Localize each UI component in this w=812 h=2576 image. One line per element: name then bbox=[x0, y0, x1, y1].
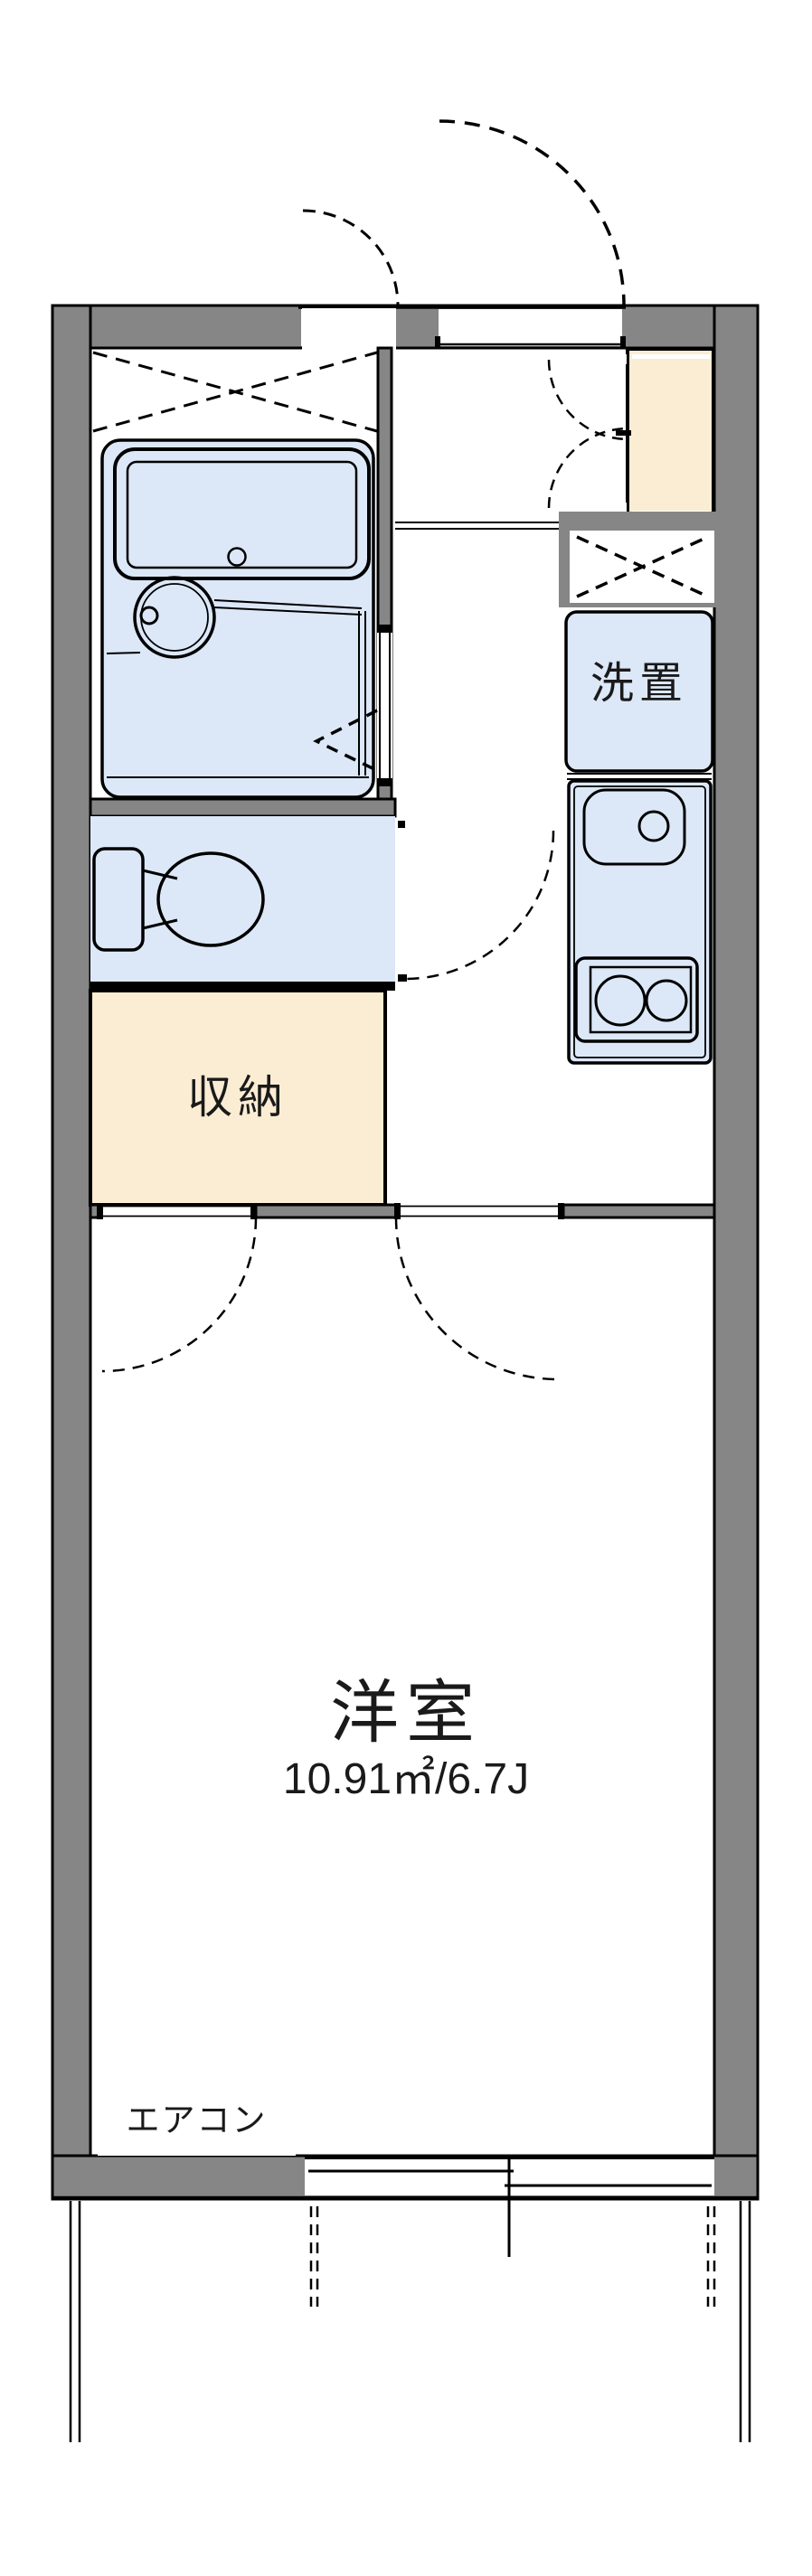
toilet-room bbox=[90, 799, 553, 991]
washer-space-label: 洗置 bbox=[566, 661, 713, 708]
bathroom bbox=[102, 440, 373, 797]
balcony-equipment-outline bbox=[81, 2216, 260, 2271]
pipe-space-box bbox=[559, 512, 716, 607]
balcony-partition-marks bbox=[311, 2206, 714, 2307]
floor-plan: 洗置 収納 洋室 10.91㎡/6.7J エアコン bbox=[0, 0, 812, 2576]
western-room-label: 洋室 bbox=[90, 1678, 722, 1750]
dead-space-cross bbox=[93, 353, 377, 431]
mid-partition-wall bbox=[90, 1203, 714, 1219]
shoe-cabinet-doors bbox=[549, 354, 631, 512]
storage-box-door-swing bbox=[299, 209, 398, 306]
entrance-door-swing bbox=[433, 118, 624, 306]
hall-door-swing bbox=[99, 1217, 256, 1372]
aircon-label: エアコン bbox=[98, 2102, 296, 2139]
genkan-area bbox=[395, 349, 716, 607]
toilet-door-swing bbox=[405, 819, 553, 979]
kitchen-unit bbox=[569, 781, 711, 1063]
kitchen-door-swing bbox=[396, 1217, 562, 1382]
storage-closet-label: 収納 bbox=[89, 1074, 387, 1121]
balcony bbox=[52, 2201, 770, 2471]
floor-plan-drawing bbox=[0, 0, 812, 2576]
refrigerator-space bbox=[574, 1217, 713, 1295]
western-room-area: 10.91㎡/6.7J bbox=[90, 1755, 722, 1804]
